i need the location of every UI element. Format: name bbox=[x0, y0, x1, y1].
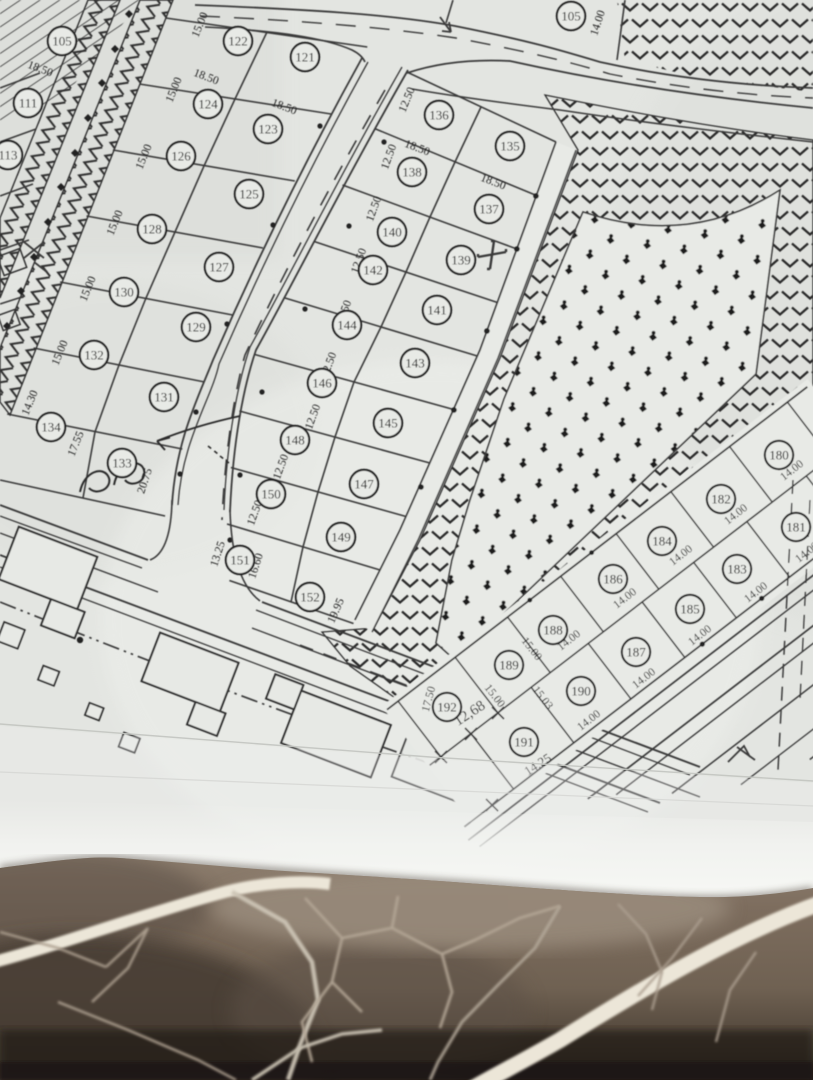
svg-text:192: 192 bbox=[437, 699, 457, 714]
svg-text:152: 152 bbox=[300, 589, 320, 604]
svg-text:187: 187 bbox=[626, 644, 646, 659]
svg-text:147: 147 bbox=[354, 476, 374, 491]
svg-text:121: 121 bbox=[295, 49, 315, 64]
svg-text:151: 151 bbox=[230, 552, 250, 567]
svg-text:135: 135 bbox=[500, 138, 520, 153]
svg-text:186: 186 bbox=[603, 571, 623, 586]
svg-text:127: 127 bbox=[209, 259, 229, 274]
svg-text:126: 126 bbox=[171, 148, 191, 163]
svg-text:133: 133 bbox=[112, 455, 132, 470]
svg-text:189: 189 bbox=[499, 657, 519, 672]
svg-text:185: 185 bbox=[680, 601, 700, 616]
svg-text:190: 190 bbox=[571, 683, 591, 698]
svg-text:150: 150 bbox=[261, 486, 281, 501]
svg-text:148: 148 bbox=[285, 432, 305, 447]
svg-text:134: 134 bbox=[41, 419, 61, 434]
svg-text:182: 182 bbox=[711, 491, 731, 506]
svg-text:183: 183 bbox=[727, 561, 747, 576]
svg-text:128: 128 bbox=[142, 221, 162, 236]
svg-text:139: 139 bbox=[451, 252, 471, 267]
svg-text:123: 123 bbox=[258, 121, 278, 136]
svg-text:149: 149 bbox=[331, 529, 351, 544]
svg-text:146: 146 bbox=[312, 375, 332, 390]
svg-text:180: 180 bbox=[769, 447, 789, 462]
svg-text:141: 141 bbox=[427, 302, 447, 317]
svg-text:131: 131 bbox=[154, 389, 174, 404]
svg-text:143: 143 bbox=[405, 355, 425, 370]
svg-text:130: 130 bbox=[114, 284, 134, 299]
svg-text:184: 184 bbox=[652, 533, 672, 548]
svg-text:125: 125 bbox=[239, 186, 259, 201]
svg-text:122: 122 bbox=[228, 33, 248, 48]
svg-text:105: 105 bbox=[52, 33, 72, 48]
svg-text:113: 113 bbox=[0, 147, 18, 162]
svg-text:140: 140 bbox=[382, 224, 402, 239]
svg-text:188: 188 bbox=[543, 622, 563, 637]
svg-text:105: 105 bbox=[561, 8, 581, 23]
svg-text:142: 142 bbox=[363, 262, 383, 277]
svg-text:144: 144 bbox=[337, 317, 357, 332]
svg-text:124: 124 bbox=[198, 96, 218, 111]
svg-text:136: 136 bbox=[429, 107, 449, 122]
svg-text:145: 145 bbox=[378, 415, 398, 430]
svg-text:181: 181 bbox=[786, 519, 806, 534]
svg-text:137: 137 bbox=[479, 201, 499, 216]
svg-text:129: 129 bbox=[186, 319, 206, 334]
svg-text:132: 132 bbox=[84, 347, 104, 362]
svg-text:111: 111 bbox=[19, 95, 38, 110]
svg-text:138: 138 bbox=[402, 164, 422, 179]
svg-text:191: 191 bbox=[514, 734, 534, 749]
